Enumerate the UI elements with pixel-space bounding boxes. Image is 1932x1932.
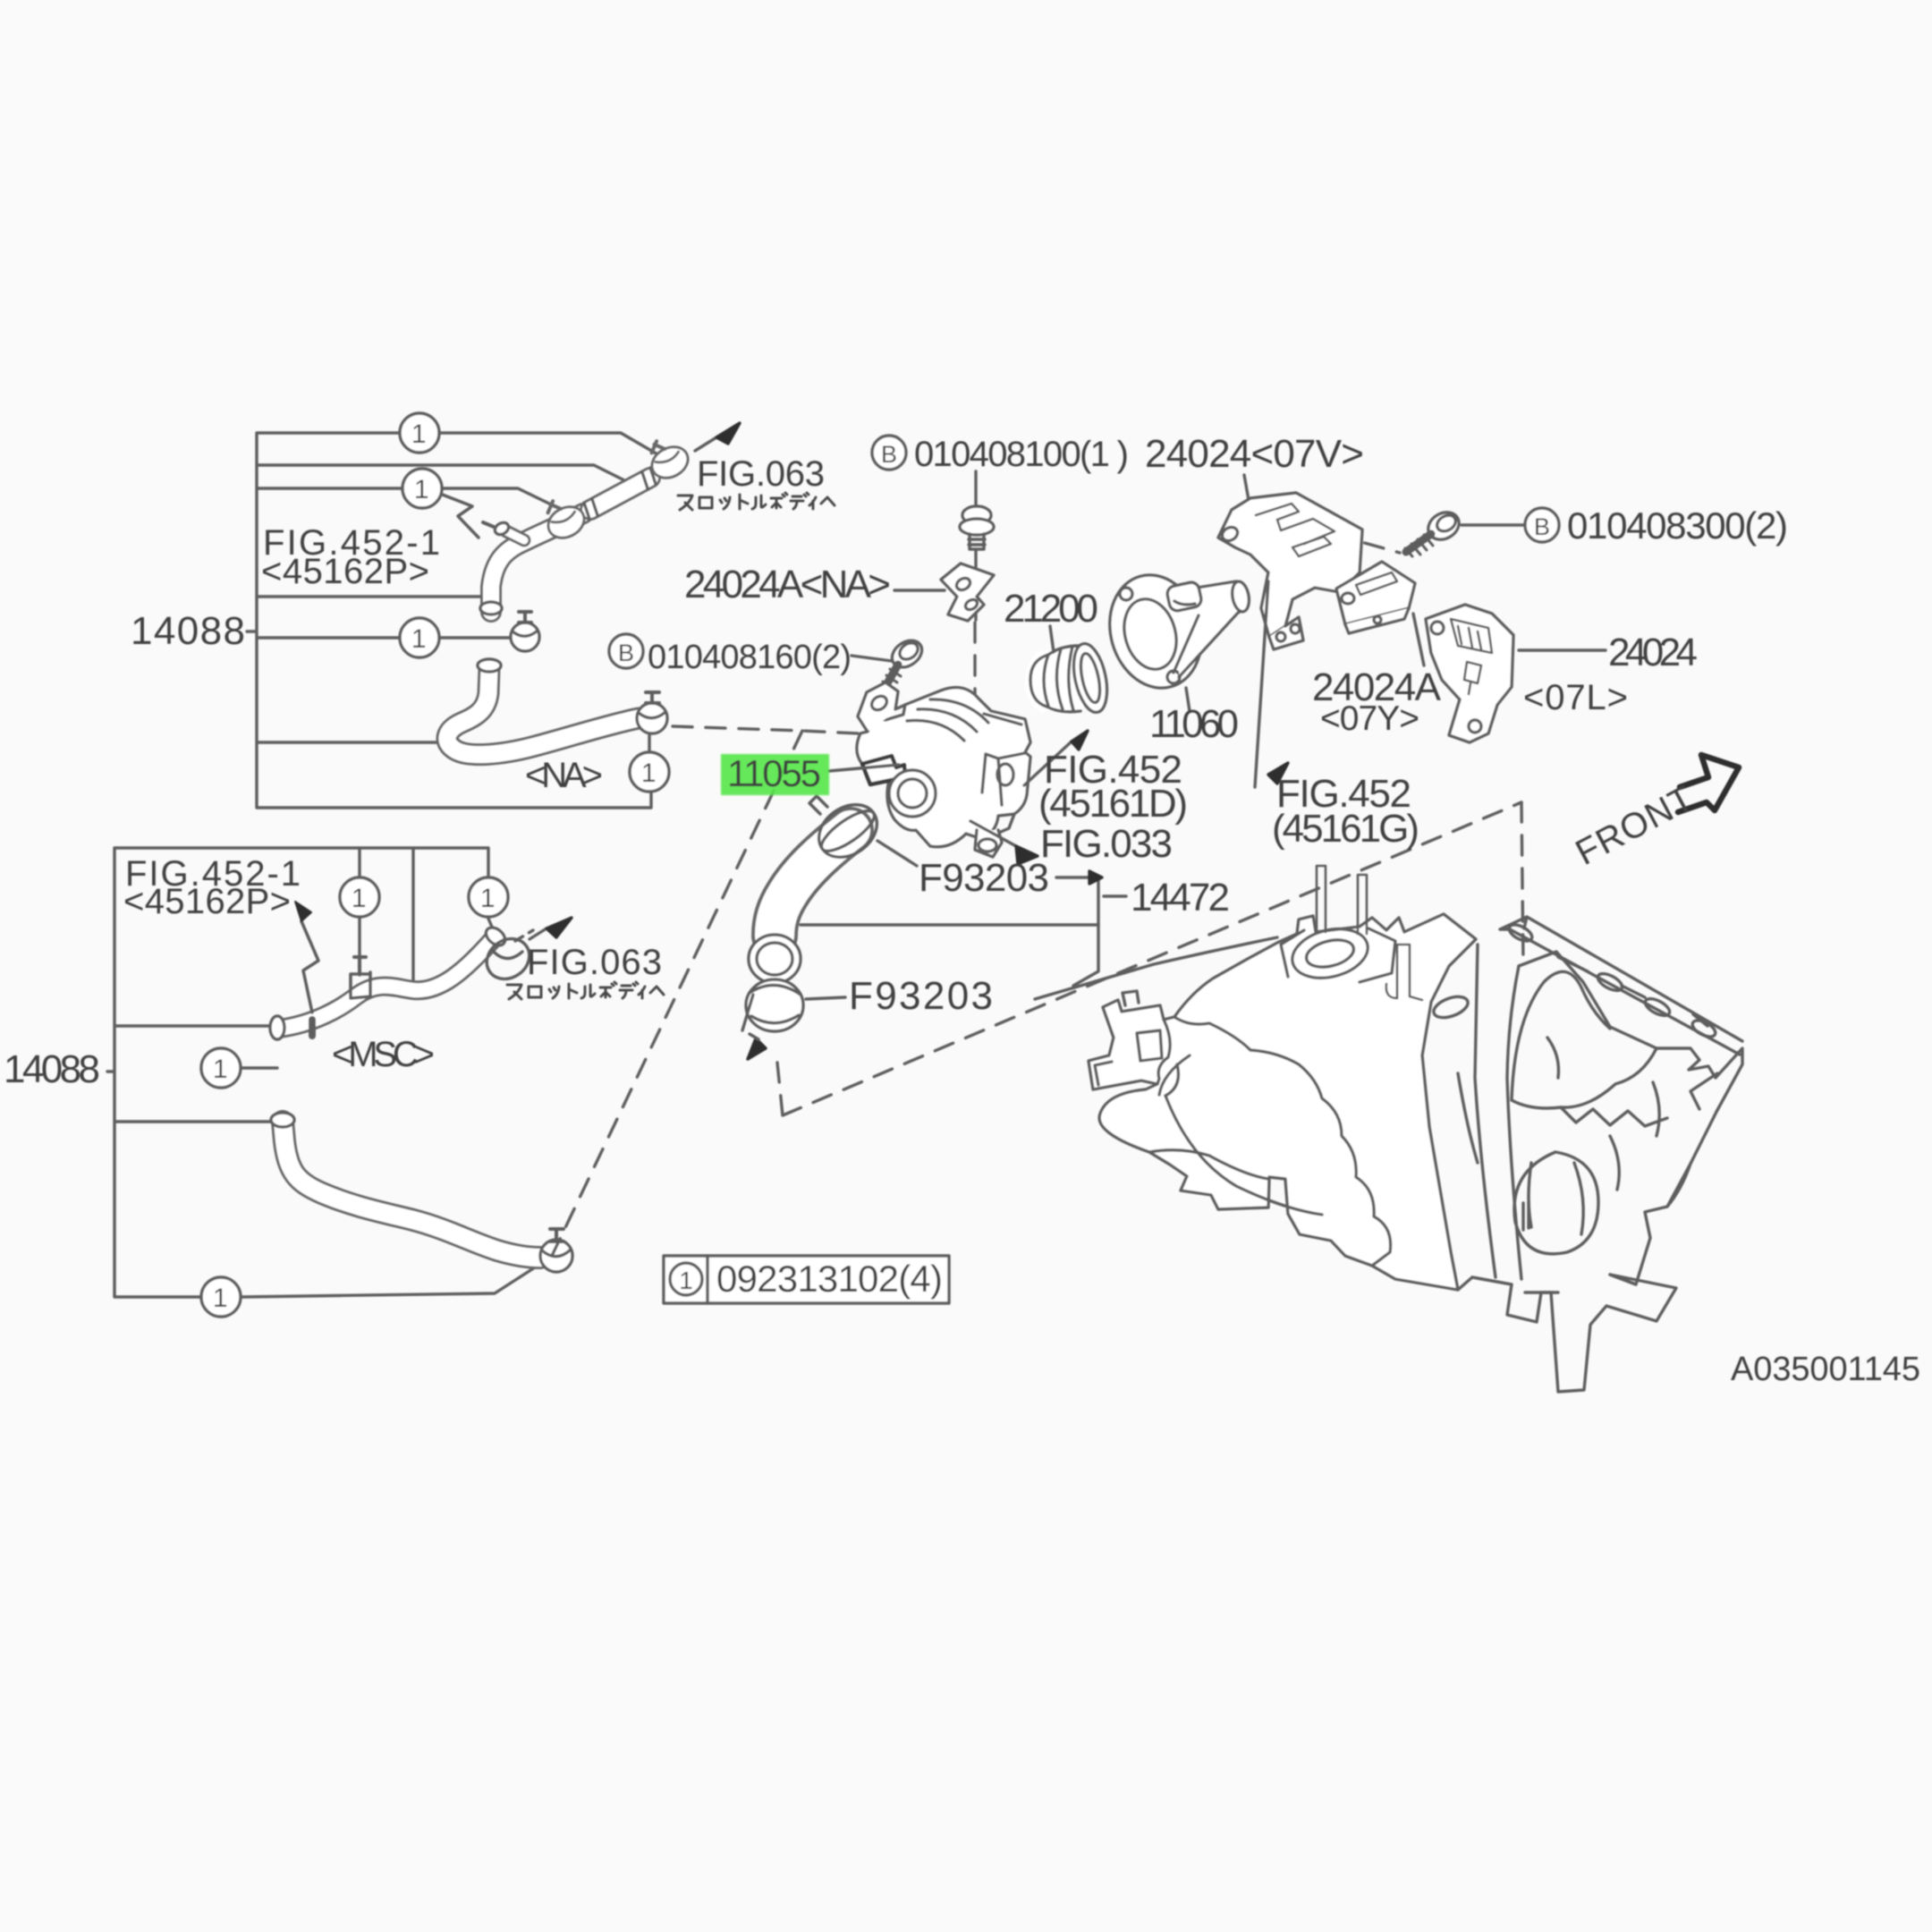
svg-text:092313102(4): 092313102(4)	[716, 1258, 943, 1300]
svg-text:24024A<NA>: 24024A<NA>	[684, 563, 891, 606]
svg-text:1: 1	[414, 475, 430, 504]
svg-text:24024<07V>: 24024<07V>	[1145, 432, 1364, 476]
svg-text:1: 1	[679, 1267, 693, 1294]
svg-text:11060: 11060	[1149, 702, 1239, 746]
svg-text:11055: 11055	[727, 752, 821, 794]
svg-text:1: 1	[480, 884, 496, 913]
svg-text:FIG.033: FIG.033	[1040, 822, 1173, 866]
svg-text:010408300(2): 010408300(2)	[1567, 504, 1788, 547]
svg-text:B: B	[618, 640, 634, 666]
svg-text:A035001145: A035001145	[1731, 1351, 1920, 1388]
svg-text:<45162P>: <45162P>	[261, 552, 429, 591]
svg-text:F93203: F93203	[919, 856, 1049, 900]
svg-text:24024: 24024	[1608, 631, 1698, 674]
svg-text:<07Y>: <07Y>	[1320, 699, 1419, 738]
svg-text:1: 1	[352, 884, 368, 913]
svg-text:1: 1	[641, 758, 657, 788]
svg-text:<45162P>: <45162P>	[123, 882, 291, 921]
svg-text:1: 1	[213, 1055, 229, 1084]
svg-text:(45161D): (45161D)	[1038, 782, 1188, 826]
svg-text:14088: 14088	[4, 1047, 100, 1091]
svg-text:1: 1	[411, 624, 428, 654]
svg-text:(45161G): (45161G)	[1272, 807, 1419, 851]
svg-text:F93203: F93203	[849, 974, 993, 1018]
svg-text:B: B	[1534, 513, 1550, 540]
svg-text:1: 1	[213, 1284, 229, 1313]
svg-text:B: B	[881, 441, 897, 468]
svg-text:010408100(1 ): 010408100(1 )	[914, 435, 1129, 474]
svg-text:<MSC>: <MSC>	[332, 1035, 435, 1074]
svg-text:FIG.063: FIG.063	[527, 943, 662, 982]
svg-text:14472: 14472	[1131, 876, 1230, 919]
svg-text:010408160(2): 010408160(2)	[648, 639, 852, 676]
svg-text:1: 1	[411, 419, 428, 449]
svg-text:<NA>: <NA>	[525, 756, 603, 795]
svg-text:21200: 21200	[1004, 587, 1098, 631]
svg-text:FIG.063: FIG.063	[697, 454, 825, 494]
svg-text:<07L>: <07L>	[1523, 678, 1628, 717]
svg-text:14088: 14088	[131, 609, 245, 653]
